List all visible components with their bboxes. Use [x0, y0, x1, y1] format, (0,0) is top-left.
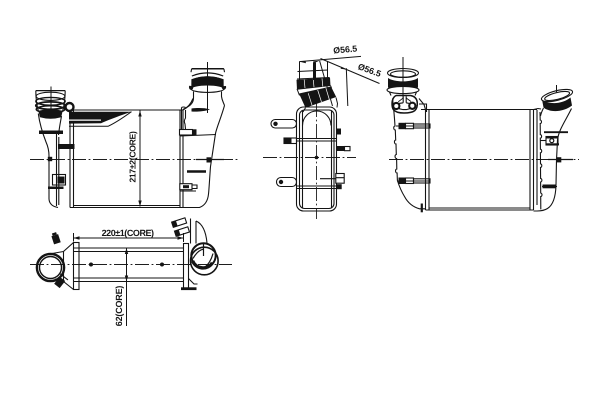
svg-text:217±2(CORE): 217±2(CORE) [128, 131, 138, 183]
svg-text:Ø56.5: Ø56.5 [333, 43, 358, 55]
svg-text:Ø56.5: Ø56.5 [357, 61, 383, 79]
svg-text:62(CORE): 62(CORE) [114, 286, 124, 327]
svg-text:220±1(CORE): 220±1(CORE) [102, 228, 154, 238]
